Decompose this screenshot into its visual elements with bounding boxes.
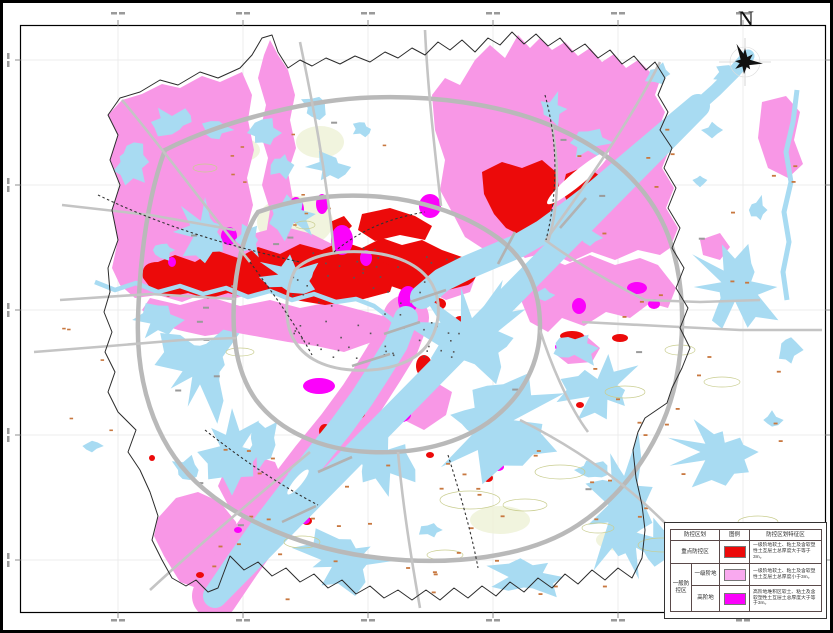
legend-header-symbol: 图例 [720,530,750,541]
compass-north-label: N [734,6,758,32]
legend-swatch-high-terrace [724,593,746,605]
legend-swatch-cell [720,564,750,586]
legend-swatch-cell [720,586,750,612]
map-document: N 防控区划 图例 防控区划特征区 重点防控区 一级阶地软土、粘土及含软塑性土互… [0,0,833,633]
lake [779,337,804,363]
legend-desc-high-terrace: 高阶地堆积区软土、粘土及含软塑性土互层土总厚度大于等于3m。 [750,586,822,612]
lake [763,410,783,426]
legend-swatch-key-zone [724,546,746,558]
legend-table: 防控区划 图例 防控区划特征区 重点防控区 一级阶地软土、粘土及含软塑性土互层土… [670,529,822,612]
legend-desc-first-terrace: 一级阶地软土、粘土及含软塑性土互层土总厚度小于3m。 [750,564,822,586]
legend-label-first-terrace: 一级阶地 [692,564,720,586]
legend-label-high-terrace: 高阶地 [692,586,720,612]
legend-swatch-first-terrace [724,569,746,581]
lake [668,419,759,487]
lake [419,523,443,537]
legend-row-key-zone: 重点防控区 一级阶地软土、粘土及含软塑性土互层土总厚度大于等于3m。 [671,541,822,564]
legend-header-feature: 防控区划特征区 [750,530,822,541]
lake [692,244,778,329]
lake [82,441,103,453]
lake [701,122,723,139]
lake [155,330,240,424]
lake [692,176,707,188]
legend-desc-key-zone: 一级阶地软土、粘土及含软塑性土互层土总厚度大于等于3m。 [750,541,822,564]
lake [292,528,400,596]
legend-label-general-group: 一般防控区 [671,564,692,612]
legend-label-key-zone: 重点防控区 [671,541,720,564]
legend-row-first-terrace: 一般防控区 一级阶地 一级阶地软土、粘土及含软塑性土互层土总厚度小于3m。 [671,564,822,586]
legend-row-high-terrace: 高阶地 高阶地堆积区软土、粘土及含软塑性土互层土总厚度大于等于3m。 [671,586,822,612]
legend-swatch-cell [720,541,750,564]
legend-panel: 防控区划 图例 防控区划特征区 重点防控区 一级阶地软土、粘土及含软塑性土互层土… [664,522,827,619]
lake [749,195,768,220]
legend-header-zoning: 防控区划 [671,530,720,541]
legend-header-row: 防控区划 图例 防控区划特征区 [671,530,822,541]
